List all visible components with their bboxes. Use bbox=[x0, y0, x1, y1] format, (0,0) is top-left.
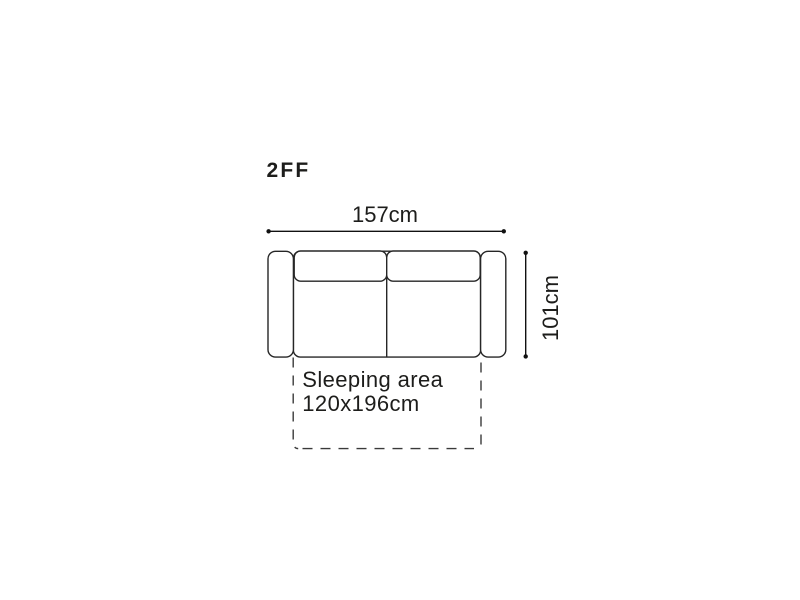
svg-text:101cm: 101cm bbox=[538, 275, 563, 341]
svg-text:Sleeping area: Sleeping area bbox=[302, 367, 443, 392]
svg-text:2FF: 2FF bbox=[267, 159, 311, 182]
svg-text:157cm: 157cm bbox=[352, 202, 418, 227]
svg-text:120x196cm: 120x196cm bbox=[302, 391, 419, 416]
